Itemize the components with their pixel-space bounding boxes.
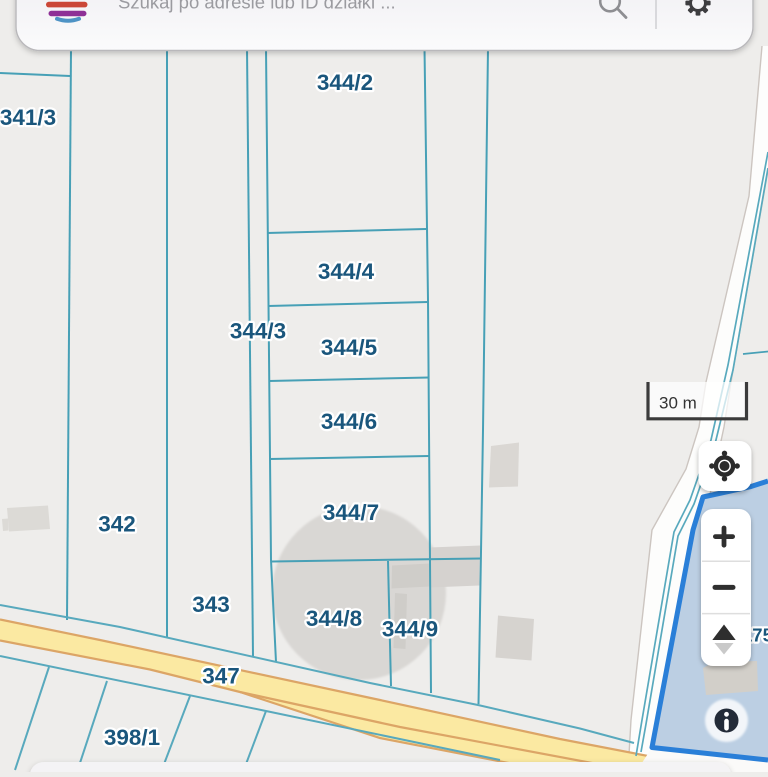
svg-text:344/7: 344/7 (323, 500, 379, 525)
svg-text:343: 343 (192, 592, 230, 617)
svg-text:344/3: 344/3 (230, 319, 286, 344)
svg-text:344/2: 344/2 (317, 70, 373, 95)
svg-text:344/5: 344/5 (321, 335, 377, 360)
svg-text:398/1: 398/1 (104, 725, 160, 750)
svg-text:344/8: 344/8 (306, 606, 362, 631)
svg-text:344/6: 344/6 (321, 409, 377, 434)
svg-text:Szukaj po adresie lub ID dział: Szukaj po adresie lub ID działki ... (118, 0, 396, 13)
svg-text:30 m: 30 m (659, 394, 697, 413)
svg-text:344/4: 344/4 (318, 259, 375, 284)
svg-text:347: 347 (202, 664, 240, 689)
svg-text:342: 342 (98, 512, 136, 537)
svg-text:341/3: 341/3 (0, 105, 56, 130)
svg-text:344/9: 344/9 (382, 617, 438, 642)
